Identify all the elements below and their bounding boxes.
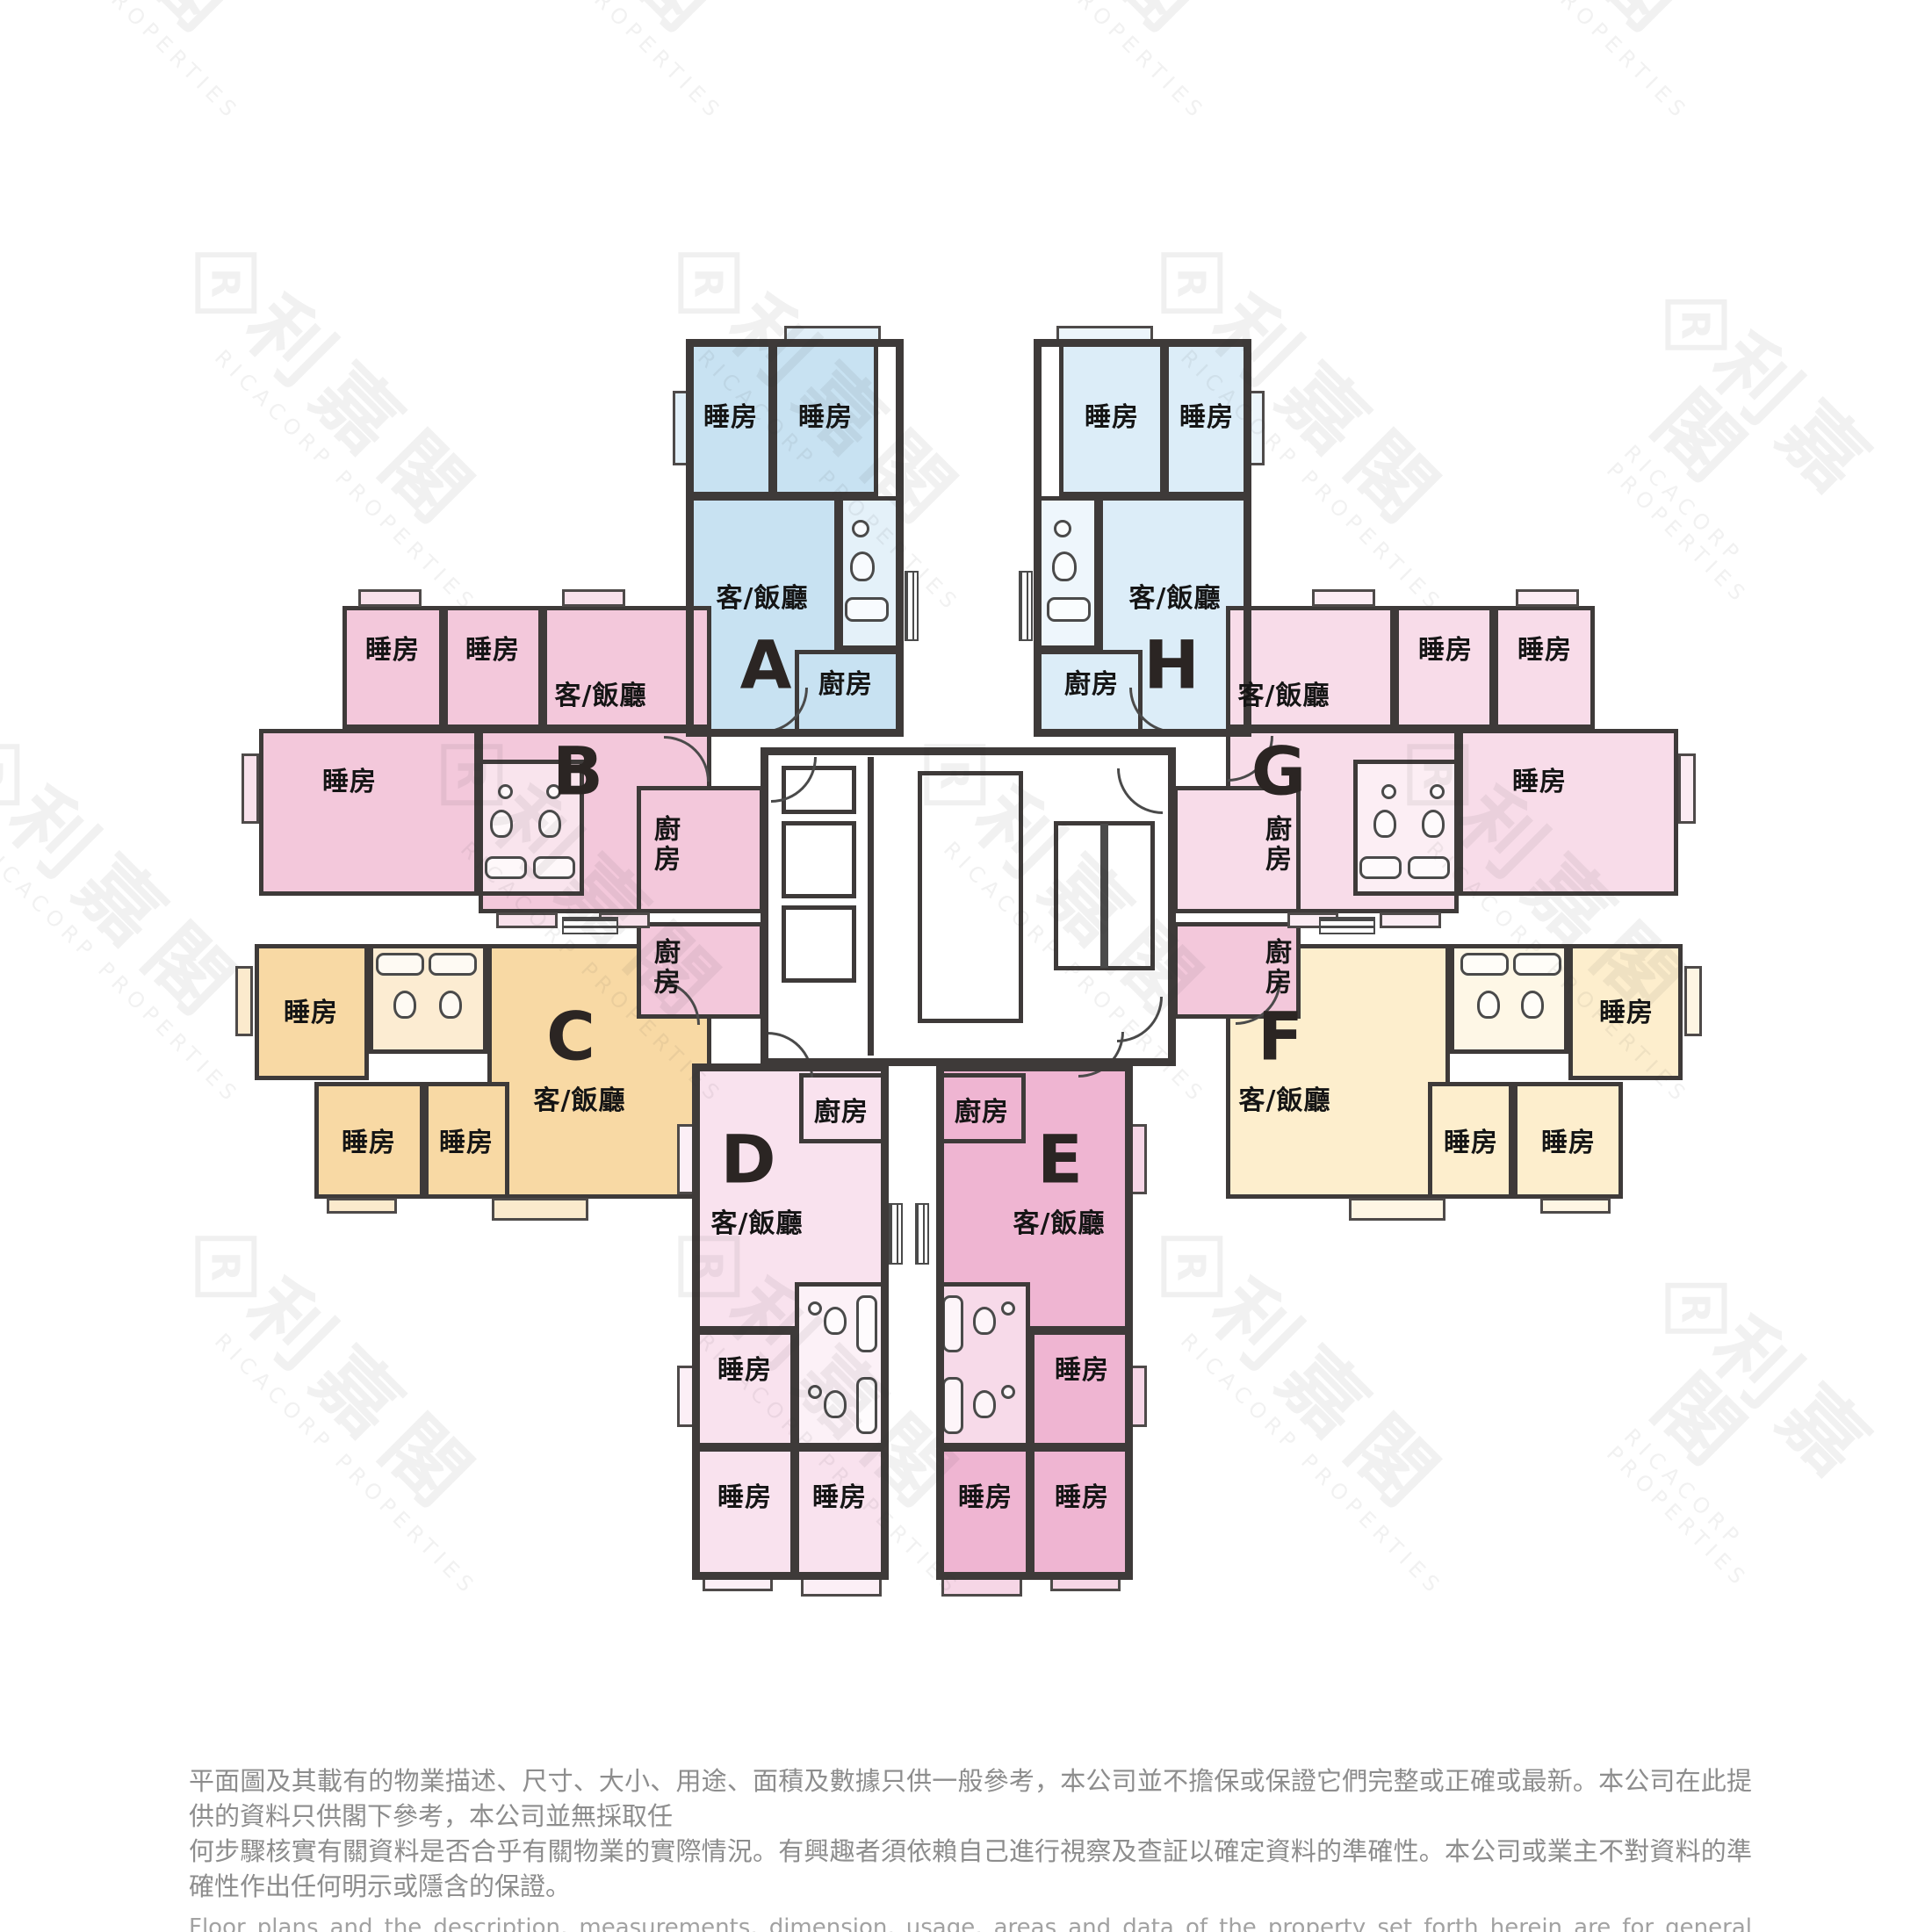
unit-f-bedroom-1-label: 睡房	[1599, 991, 1654, 1029]
unit-a-kitchen-label: 廚房	[818, 662, 873, 701]
unit-h-bedroom-1-label: 睡房	[1179, 395, 1234, 434]
unit-a-letter: A	[740, 626, 792, 704]
unit-f-letter: F	[1258, 998, 1303, 1076]
unit-d-bedroom-1-label: 睡房	[717, 1348, 772, 1387]
unit-h-bedroom-2-label: 睡房	[1085, 395, 1139, 434]
unit-e-kitchen-label: 廚房	[955, 1090, 1009, 1128]
unit-c-bedroom-1-label: 睡房	[284, 991, 338, 1029]
unit-a-bedroom-1-label: 睡房	[703, 395, 758, 434]
unit-a-living-label: 客/飯廳	[717, 576, 809, 615]
unit-b-letter: B	[552, 732, 603, 811]
unit-c-kitchen-label: 廚房	[645, 938, 683, 998]
unit-f-kitchen-label: 廚房	[1256, 938, 1294, 998]
unit-b-bedroom-1-label: 睡房	[365, 628, 420, 667]
unit-a-bedroom-2-label: 睡房	[798, 395, 853, 434]
unit-d-letter: D	[720, 1121, 775, 1199]
unit-e-bedroom-3-label: 睡房	[958, 1475, 1013, 1514]
unit-d-living-label: 客/飯廳	[711, 1201, 804, 1240]
floor-plan-page: A客/飯廳睡房睡房廚房H客/飯廳睡房睡房廚房B客/飯廳睡房睡房睡房廚房G客/飯廳…	[0, 0, 1932, 1932]
unit-e-living-label: 客/飯廳	[1013, 1201, 1106, 1240]
unit-g-bedroom-2-label: 睡房	[1418, 628, 1473, 667]
disclaimer-zh-line1: 平面圖及其載有的物業描述、尺寸、大小、用途、面積及數據只供一般參考，本公司並不擔…	[189, 1766, 1752, 1831]
unit-g-bedroom-1-label: 睡房	[1517, 628, 1572, 667]
unit-d-bedroom-3-label: 睡房	[812, 1475, 867, 1514]
unit-c-living-label: 客/飯廳	[534, 1078, 626, 1117]
unit-f-bedroom-2-label: 睡房	[1541, 1121, 1596, 1159]
unit-h-kitchen-label: 廚房	[1064, 662, 1119, 701]
unit-g-bedroom-3-label: 睡房	[1512, 760, 1567, 798]
disclaimer: 平面圖及其載有的物業描述、尺寸、大小、用途、面積及數據只供一般參考，本公司並不擔…	[189, 1763, 1752, 1932]
unit-h-letter: H	[1143, 626, 1200, 704]
unit-e-letter: E	[1037, 1121, 1083, 1199]
unit-d-bedroom-2-label: 睡房	[717, 1475, 772, 1514]
unit-c-letter: C	[546, 998, 595, 1076]
disclaimer-english: Floor plans and the description, measure…	[189, 1913, 1752, 1932]
disclaimer-zh-line2: 何步驟核實有關資料是否合乎有關物業的實際情況。有興趣者須依賴自己進行視察及查証以…	[189, 1836, 1752, 1901]
unit-e-bedroom-2-label: 睡房	[1055, 1475, 1109, 1514]
unit-c-bedroom-3-label: 睡房	[439, 1121, 494, 1159]
unit-f-living-label: 客/飯廳	[1239, 1078, 1331, 1117]
unit-b-kitchen-label: 廚房	[645, 815, 683, 875]
unit-f-bedroom-3-label: 睡房	[1444, 1121, 1498, 1159]
unit-b-bedroom-3-label: 睡房	[322, 760, 377, 798]
unit-g-letter: G	[1251, 732, 1306, 811]
unit-g-kitchen-label: 廚房	[1256, 815, 1294, 875]
unit-d-kitchen-label: 廚房	[814, 1090, 869, 1128]
floor-plan-labels: A客/飯廳睡房睡房廚房H客/飯廳睡房睡房廚房B客/飯廳睡房睡房睡房廚房G客/飯廳…	[0, 0, 1932, 1932]
disclaimer-chinese: 平面圖及其載有的物業描述、尺寸、大小、用途、面積及數據只供一般參考，本公司並不擔…	[189, 1763, 1752, 1904]
unit-b-living-label: 客/飯廳	[555, 674, 647, 712]
unit-e-bedroom-1-label: 睡房	[1055, 1348, 1109, 1387]
unit-g-living-label: 客/飯廳	[1238, 674, 1330, 712]
unit-h-living-label: 客/飯廳	[1129, 576, 1222, 615]
unit-b-bedroom-2-label: 睡房	[465, 628, 520, 667]
unit-c-bedroom-2-label: 睡房	[342, 1121, 396, 1159]
